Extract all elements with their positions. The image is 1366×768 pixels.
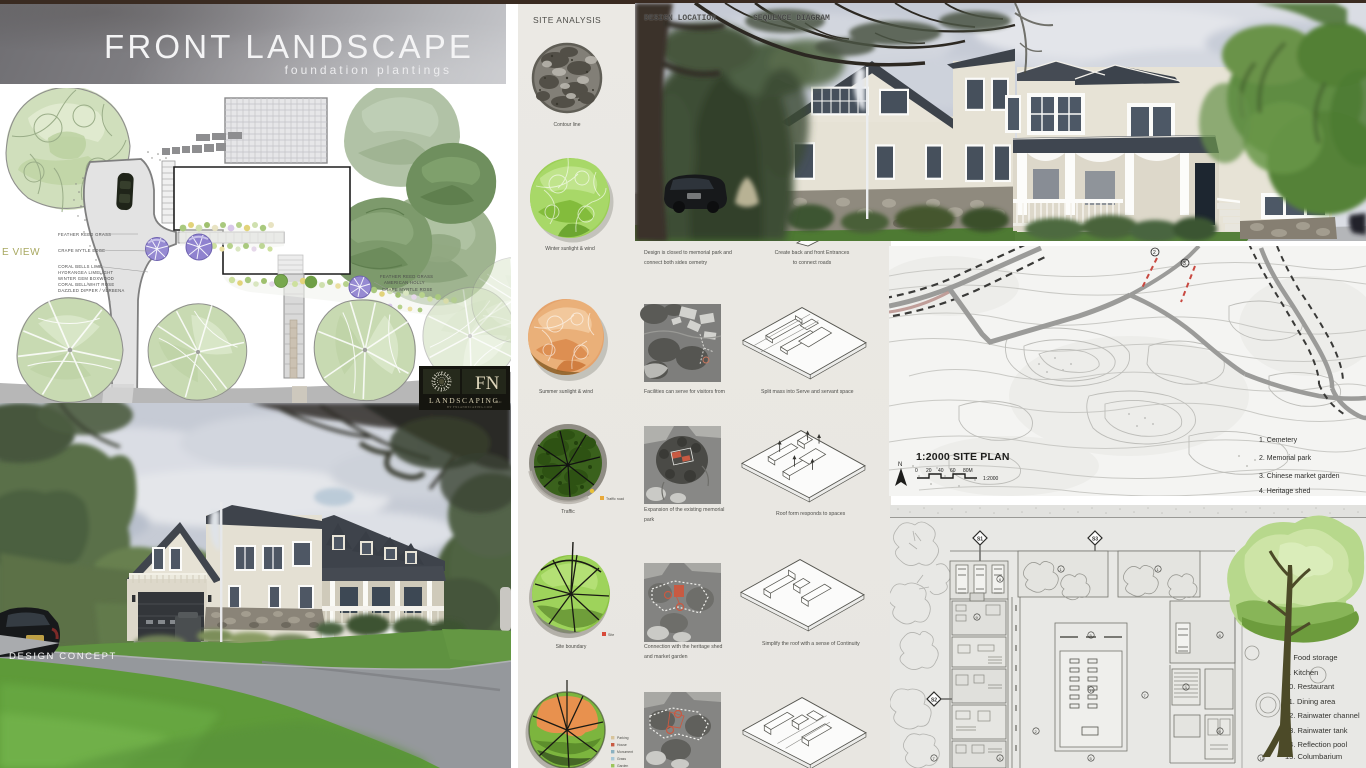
svg-text:Facilities can serve for visit: Facilities can serve for visitors from: [644, 389, 725, 395]
svg-text:3: 3: [1183, 261, 1186, 267]
svg-text:13. Rainwater tank: 13. Rainwater tank: [1285, 726, 1348, 735]
svg-text:AMERICAN HOLLY: AMERICAN HOLLY: [384, 280, 425, 285]
svg-text:80M: 80M: [963, 468, 973, 474]
svg-text:HYDRANGEA LIMELIGHT: HYDRANGEA LIMELIGHT: [58, 270, 113, 275]
svg-text:Winter sunlight & wind: Winter sunlight & wind: [545, 246, 595, 252]
svg-text:14. Reflection pool: 14. Reflection pool: [1285, 740, 1347, 749]
svg-text:Simplify the roof with a sense: Simplify the roof with a sense of Contin…: [762, 641, 860, 647]
svg-text:Garden: Garden: [617, 764, 628, 768]
svg-text:E VIEW: E VIEW: [2, 247, 40, 258]
svg-text:Traffic road: Traffic road: [606, 497, 624, 501]
svg-text:connect both sides cemetry: connect both sides cemetry: [644, 260, 708, 266]
svg-text:1:2000: 1:2000: [983, 476, 999, 482]
svg-text:40: 40: [938, 468, 944, 474]
svg-text:0: 0: [915, 468, 918, 474]
svg-text:Connection with the heritage s: Connection with the heritage shed: [644, 644, 723, 650]
svg-text:Roof form responds to spaces: Roof form responds to spaces: [776, 511, 846, 517]
svg-text:CORAL BELL/WHIT ROSE: CORAL BELL/WHIT ROSE: [58, 282, 115, 287]
svg-text:and market garden: and market garden: [644, 654, 688, 660]
svg-text:LLC: LLC: [495, 400, 502, 404]
svg-text:8. Food storage: 8. Food storage: [1285, 653, 1338, 662]
svg-text:CRAPE MYRTLE ROSE: CRAPE MYRTLE ROSE: [382, 287, 433, 292]
svg-text:park: park: [644, 517, 654, 523]
svg-text:WINTER GEM BOXWOOD: WINTER GEM BOXWOOD: [58, 276, 114, 281]
svg-text:60: 60: [950, 468, 956, 474]
svg-text:3. Chinese market garden: 3. Chinese market garden: [1259, 473, 1340, 480]
svg-text:House: House: [617, 743, 627, 747]
svg-text:Site boundary: Site boundary: [556, 644, 587, 650]
svg-text:Traffic: Traffic: [561, 509, 575, 515]
svg-text:S2: S2: [931, 698, 937, 704]
svg-text:S1: S1: [977, 537, 983, 543]
svg-text:LANDSCAPING: LANDSCAPING: [429, 396, 500, 405]
svg-text:Expansion of the existing memo: Expansion of the existing memorial: [644, 507, 724, 513]
svg-text:Monument: Monument: [617, 750, 633, 754]
svg-text:2: 2: [1153, 250, 1156, 256]
svg-text:1:2000 SITE PLAN: 1:2000 SITE PLAN: [916, 451, 1010, 463]
svg-text:Design is closed to memorial p: Design is closed to memorial park and: [644, 250, 732, 256]
svg-text:FN: FN: [475, 373, 500, 394]
svg-text:2. Memorial park: 2. Memorial park: [1259, 455, 1312, 462]
svg-text:BY FNLANDSCAPING.COM: BY FNLANDSCAPING.COM: [447, 405, 492, 409]
svg-text:4. Heritage shed: 4. Heritage shed: [1259, 488, 1310, 495]
svg-text:Contour line: Contour line: [554, 122, 581, 128]
svg-text:CRAPE MYTLE EDGE: CRAPE MYTLE EDGE: [58, 248, 105, 253]
svg-text:Parking: Parking: [617, 736, 629, 740]
svg-text:15. Columbarium: 15. Columbarium: [1285, 752, 1342, 761]
svg-text:Create back and front Entrance: Create back and front Entrances: [775, 250, 850, 256]
svg-text:10. Restaurant: 10. Restaurant: [1285, 682, 1335, 691]
svg-text:20: 20: [926, 468, 932, 474]
svg-text:DAZZLED DIPPER / VERBENA: DAZZLED DIPPER / VERBENA: [58, 288, 125, 293]
svg-text:FEATHER REED GRASS: FEATHER REED GRASS: [380, 274, 433, 279]
svg-text:12. Rainwater channel: 12. Rainwater channel: [1285, 711, 1360, 720]
svg-text:S3: S3: [1092, 537, 1098, 543]
svg-text:Split mass into Serve and serv: Split mass into Serve and servant space: [761, 389, 854, 395]
svg-text:Summer sunlight & wind: Summer sunlight & wind: [539, 389, 593, 395]
svg-text:CORAL BELLS LIME: CORAL BELLS LIME: [58, 264, 102, 269]
svg-text:1. Cemetery: 1. Cemetery: [1259, 437, 1298, 444]
svg-text:11. Dining area: 11. Dining area: [1285, 697, 1336, 706]
svg-text:FEATHER REED GRASS: FEATHER REED GRASS: [58, 232, 111, 237]
svg-text:Grass: Grass: [617, 757, 626, 761]
svg-text:N: N: [898, 462, 902, 468]
svg-text:DESIGN CONCEPT: DESIGN CONCEPT: [9, 651, 117, 662]
svg-text:to connect roads: to connect roads: [793, 260, 832, 266]
svg-text:10: 10: [1090, 688, 1095, 693]
svg-text:Site: Site: [608, 633, 614, 637]
